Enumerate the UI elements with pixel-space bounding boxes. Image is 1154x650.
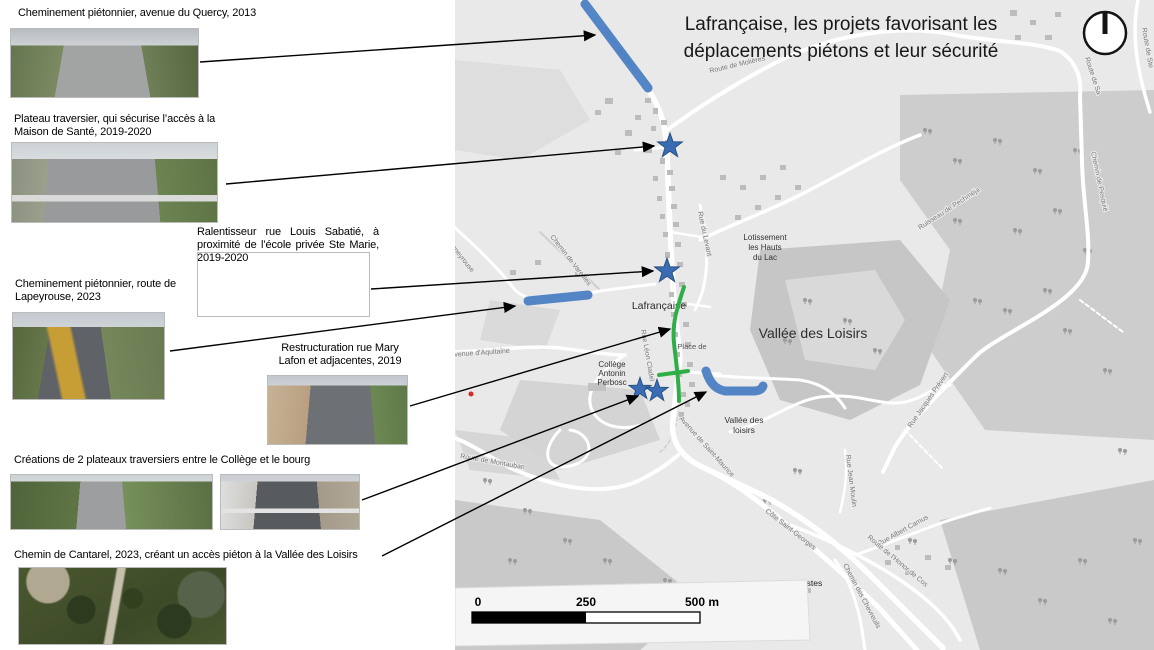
caption-avenue-du-quercy: Cheminement piétonnier, avenue du Quercy…	[18, 7, 268, 20]
place-de-label: Place de	[677, 342, 706, 351]
vallee-small-label: Vallée des	[724, 415, 763, 425]
lotissement-label: les Hauts	[748, 243, 781, 252]
photo-lapeyrouse	[12, 312, 165, 400]
college-label: Antonin	[598, 369, 625, 378]
map-canvas: Avenue du Quercy Route de Molières Route…	[455, 0, 1154, 650]
scale-bar: 0 250 500 m	[455, 580, 810, 646]
photo-cantarel	[18, 567, 227, 645]
map-title: Lafrançaise, les projets favorisant les …	[652, 12, 1030, 66]
photo-avenue-du-quercy	[10, 28, 199, 98]
vallee-des-loisirs-label: Vallée des Loisirs	[759, 325, 868, 341]
college-label: Collège	[598, 360, 626, 369]
college-label: Perbosc	[597, 378, 626, 387]
lotissement-label: du Lac	[753, 253, 777, 262]
map: Avenue du Quercy Route de Molières Route…	[455, 0, 1154, 650]
red-marker	[469, 392, 474, 397]
caption-cantarel: Chemin de Cantarel, 2023, créant un accè…	[14, 549, 399, 562]
caption-mary-lafon: Restructuration rue Mary Lafon et adjace…	[267, 342, 413, 368]
photo-louis-sabatie	[197, 252, 370, 317]
caption-lapeyrouse: Cheminement piétonnier, route de Lapeyro…	[15, 278, 185, 304]
photo-plateaux-college-2	[220, 474, 360, 530]
lotissement-label: Lotissement	[743, 233, 787, 242]
blue-path-lapeyrouse	[528, 295, 588, 301]
scale-tick-0: 0	[475, 595, 482, 609]
vallee-small-label: loisirs	[733, 425, 755, 435]
photo-plateaux-college-1	[10, 474, 213, 530]
map-title-line1: Lafrançaise, les projets favorisant les	[652, 12, 1030, 39]
scale-tick-250: 250	[576, 595, 596, 609]
slide: Avenue du Quercy Route de Molières Route…	[0, 0, 1154, 650]
scale-tick-500: 500 m	[685, 595, 719, 609]
photo-mary-lafon	[267, 375, 408, 445]
photo-maison-de-sante	[11, 142, 218, 223]
north-arrow-icon	[1084, 11, 1126, 54]
map-title-line2: déplacements piétons et leur sécurité	[652, 39, 1030, 66]
caption-plateaux-college: Créations de 2 plateaux traversiers entr…	[14, 454, 409, 467]
caption-maison-de-sante: Plateau traversier, qui sécurise l’accès…	[14, 113, 234, 139]
